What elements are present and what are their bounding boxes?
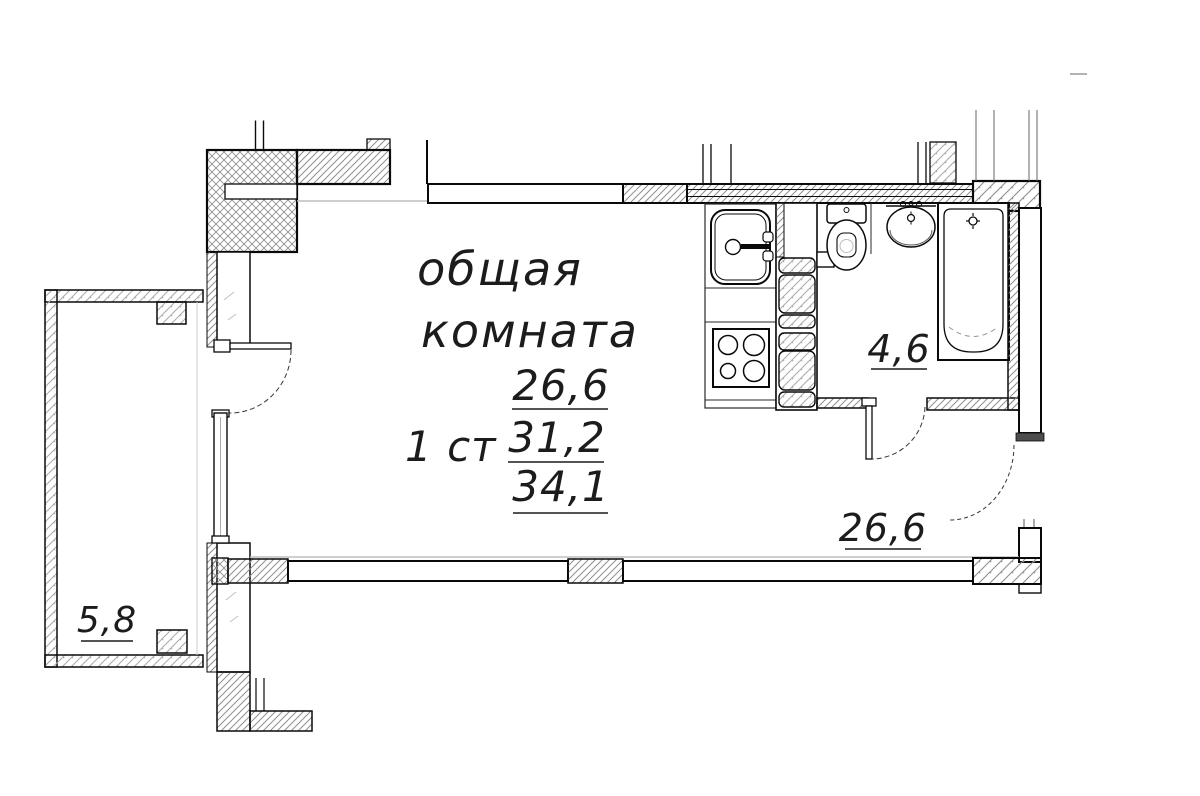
south-corner-block-west bbox=[212, 558, 228, 584]
area-total-label: 34,1 bbox=[512, 462, 610, 511]
balcony-door-hinge bbox=[214, 340, 230, 352]
balcony-window bbox=[212, 410, 229, 543]
balcony-wall-top bbox=[45, 290, 203, 302]
upper-stub-hatched bbox=[930, 142, 956, 183]
kitchen bbox=[705, 204, 776, 408]
bathtub-icon bbox=[938, 203, 1009, 360]
pillar-slot bbox=[225, 184, 297, 199]
pillar-top-left bbox=[207, 150, 297, 252]
entrance-door-leaf bbox=[1016, 433, 1044, 441]
vent-shaft-wall-strip bbox=[776, 203, 784, 257]
north-wall-layered-band bbox=[687, 184, 973, 203]
south-pier-2 bbox=[568, 559, 623, 583]
floor-plan-svg: 5,8 bbox=[0, 0, 1200, 796]
bath-east-wall-strip bbox=[1008, 203, 1019, 410]
vent-block bbox=[779, 351, 815, 390]
vent-block bbox=[779, 275, 815, 313]
north-wall-step bbox=[367, 139, 390, 150]
window-cap-bottom bbox=[212, 536, 229, 543]
floor-plan-canvas: 5,8 bbox=[0, 0, 1200, 796]
room-name-line2: комната bbox=[421, 304, 639, 358]
kitchen-sink-icon bbox=[711, 210, 773, 284]
balcony-area-label: 5,8 bbox=[77, 600, 137, 641]
east-column-lower bbox=[1019, 528, 1041, 562]
vent-block bbox=[779, 315, 815, 328]
west-wall-outer-strip bbox=[207, 252, 217, 347]
toilet-icon bbox=[827, 204, 866, 270]
room-name-line1: общая bbox=[417, 242, 583, 296]
balcony-wall-bottom bbox=[45, 655, 203, 667]
south-corner-block-east bbox=[973, 558, 1041, 584]
vent-block bbox=[779, 258, 815, 273]
vent-block bbox=[779, 333, 815, 350]
north-wall-thick-band bbox=[297, 150, 390, 184]
north-wall-plain bbox=[428, 184, 623, 203]
balcony-door-leaf bbox=[230, 343, 291, 349]
bathroom-door-hinge bbox=[862, 398, 876, 406]
vent-block bbox=[779, 392, 815, 407]
balcony-wall-left bbox=[45, 290, 57, 667]
unit-type-label: 1 ст bbox=[405, 422, 497, 471]
area-middle-label: 31,2 bbox=[508, 413, 606, 462]
area-living-label: 26,6 bbox=[512, 361, 610, 410]
pillar-bottom-left bbox=[217, 672, 250, 731]
east-column-upper bbox=[1019, 208, 1041, 433]
hall-area-label: 26,6 bbox=[839, 506, 928, 550]
bath-south-wall-right bbox=[927, 398, 1019, 410]
south-window-band-1 bbox=[288, 561, 568, 581]
balcony-pier-bottom bbox=[157, 630, 187, 653]
south-pier-1 bbox=[228, 559, 288, 583]
stove-icon bbox=[713, 329, 769, 387]
bathroom-area-label: 4,6 bbox=[867, 327, 930, 371]
bath-south-wall-left bbox=[817, 398, 868, 408]
west-wall-upper bbox=[217, 252, 250, 347]
balcony-pier-top bbox=[157, 302, 186, 324]
east-column-stub bbox=[1019, 584, 1041, 593]
south-window-band-2 bbox=[623, 561, 973, 581]
wall-south bbox=[212, 557, 1041, 584]
bathroom-door-leaf bbox=[866, 406, 872, 459]
lower-left-band bbox=[250, 711, 312, 731]
north-wall-pier bbox=[623, 184, 687, 203]
